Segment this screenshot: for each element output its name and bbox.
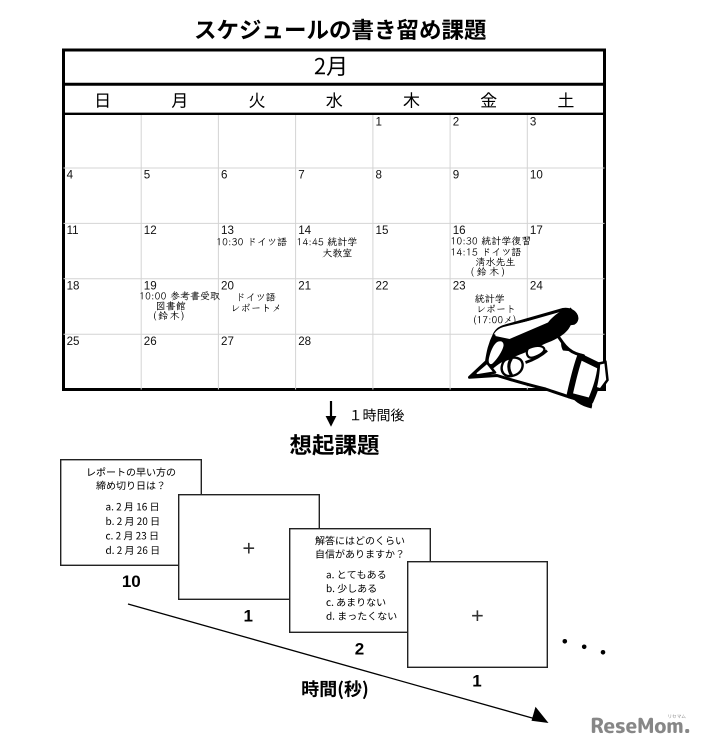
- svg-text:3: 3: [530, 115, 536, 128]
- svg-text:20: 20: [221, 279, 234, 292]
- svg-text:7: 7: [298, 169, 304, 182]
- svg-text:1: 1: [243, 607, 252, 626]
- svg-text:4: 4: [67, 169, 74, 182]
- svg-text:1: 1: [376, 115, 382, 128]
- svg-text:19: 19: [144, 279, 157, 292]
- svg-text:8: 8: [376, 169, 382, 182]
- svg-text:10: 10: [122, 572, 141, 591]
- svg-text:18: 18: [67, 279, 80, 292]
- svg-text:25: 25: [67, 335, 80, 348]
- svg-text:21: 21: [298, 279, 311, 292]
- svg-text:10: 10: [530, 169, 543, 182]
- svg-text:22: 22: [376, 279, 389, 292]
- svg-text:17: 17: [530, 224, 543, 237]
- svg-text:1: 1: [472, 672, 481, 691]
- svg-text:23: 23: [453, 279, 466, 292]
- svg-text:15: 15: [376, 224, 389, 237]
- svg-text:28: 28: [298, 335, 311, 348]
- svg-text:6: 6: [221, 169, 227, 182]
- svg-text:16: 16: [453, 224, 466, 237]
- svg-text:24: 24: [530, 279, 543, 292]
- svg-text:5: 5: [144, 169, 150, 182]
- svg-text:2: 2: [453, 115, 459, 128]
- svg-text:11: 11: [67, 224, 79, 237]
- svg-text:9: 9: [453, 169, 459, 182]
- svg-text:26: 26: [144, 335, 157, 348]
- svg-text:13: 13: [221, 224, 234, 237]
- svg-text:14: 14: [298, 224, 311, 237]
- svg-text:27: 27: [221, 335, 234, 348]
- svg-text:2: 2: [355, 640, 364, 659]
- svg-text:12: 12: [144, 224, 157, 237]
